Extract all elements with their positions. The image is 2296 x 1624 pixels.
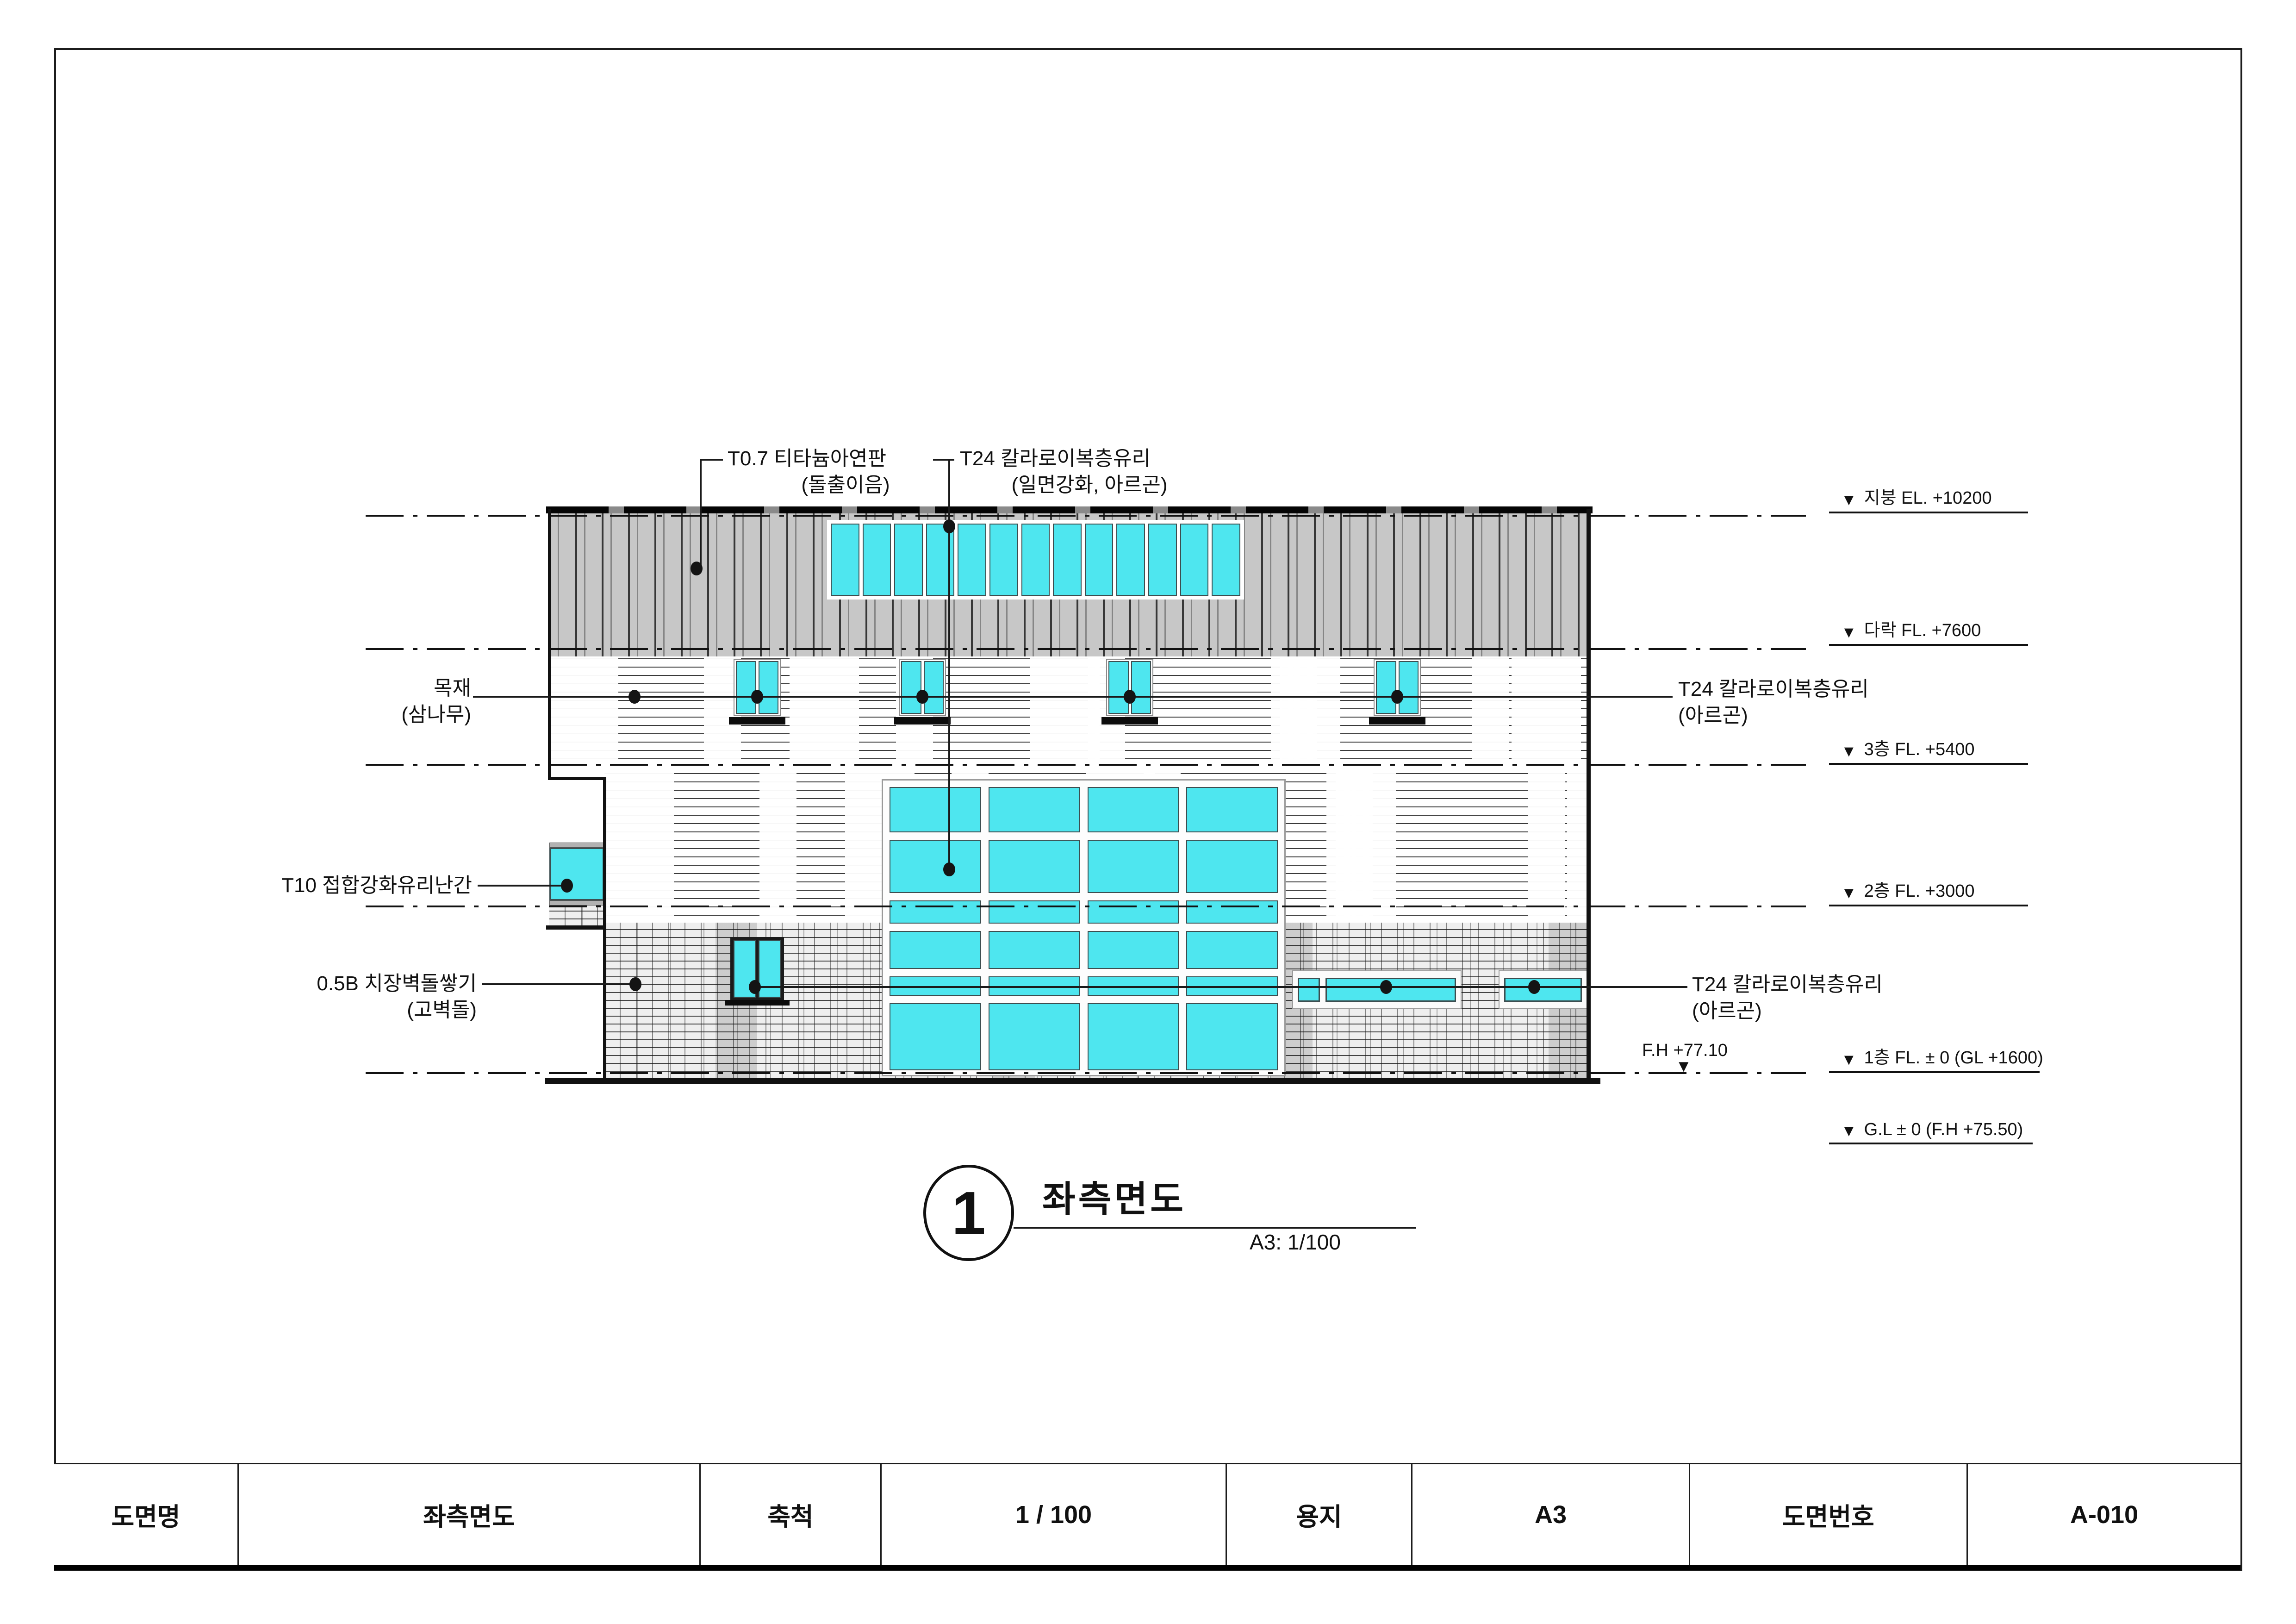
leader-railing [478,885,570,887]
glass-pane [890,1003,981,1070]
ground-line [545,1078,1600,1084]
level-line-3f [366,764,1806,766]
note-line: (아르곤) [1692,998,1883,1024]
titleblock-value-scale: 1 / 100 [882,1464,1227,1565]
glass-pane [1180,524,1209,596]
window-sill [894,717,951,725]
note-line: (일면강화, 아르곤) [960,472,1219,498]
glass-railing [549,848,604,900]
level-triangle-icon: ▼ [1841,743,1857,760]
clerestory-window-strip [827,520,1244,600]
level-marker-3f: ▼ 3층 FL. +5400 [1829,737,2028,765]
leader-brick [482,983,637,985]
glass-pane [1376,661,1396,714]
glass-pane [1399,661,1419,714]
attic-window [1106,659,1153,716]
glass-pane [1088,1003,1179,1070]
attic-window [734,659,781,716]
glass-pane [924,661,944,714]
glass-pane [1186,840,1278,893]
leader-dot [1391,690,1403,704]
curtain-wall-row [890,931,1278,969]
glass-pane [759,940,781,998]
strip-window-pane [1504,978,1582,1002]
glass-pane [1085,524,1114,596]
level-line-2f [366,906,1806,907]
balcony-base-line [546,925,606,930]
level-marker-2f: ▼ 2층 FL. +3000 [1829,879,2028,906]
leader-dot [628,690,641,704]
leader-roof-panel [700,459,702,570]
window-sill [1369,717,1425,725]
level-line-attic [366,648,1806,650]
note-line: (삼나무) [278,701,471,728]
glass-pane [958,524,986,596]
note-glass-top: T24 칼라로이복층유리 (일면강화, 아르곤) [960,445,1219,498]
glass-pane [1088,840,1179,893]
level-triangle-icon: ▼ [1841,624,1857,641]
titleblock-label-drawing-no: 도면번호 [1690,1464,1968,1565]
glass-pane [736,661,756,714]
central-curtain-wall [882,779,1286,1076]
level-label: 다락 FL. +7600 [1864,616,1981,641]
glass-pane [1131,661,1151,714]
glass-pane [926,524,955,596]
drawing-sheet: T0.7 티타늄아연판 (돌출이음) T24 칼라로이복층유리 (일면강화, 아… [0,0,2296,1624]
glass-pane [1186,787,1278,832]
level-label: 2층 FL. +3000 [1864,876,1975,902]
level-label: 3층 FL. +5400 [1864,735,1975,760]
level-marker-1f: ▼ 1층 FL. ± 0 (GL +1600) [1829,1045,2040,1073]
leader-glass-bottom [749,986,1687,988]
wood-siding-attic-band [549,656,1590,766]
leader-dot [943,519,955,533]
view-title: 좌측면도 [1042,1170,1186,1222]
glass-pane [989,900,1080,924]
glass-pane [759,661,779,714]
note-line: 목재 [278,675,471,701]
note-line: 0.5B 치장벽돌쌓기 [278,970,477,997]
railing-bottom-cap [549,900,604,906]
level-line-roof [366,515,1806,517]
titleblock-label-drawing-name: 도면명 [54,1464,239,1565]
level-line-1f [366,1072,1806,1074]
curtain-wall-row [890,900,1278,924]
note-wood: 목재 (삼나무) [278,675,471,728]
leader-dot [916,690,928,704]
level-label: 지붕 EL. +10200 [1864,483,1992,509]
curtain-wall-row [890,1003,1278,1070]
note-line: T24 칼라로이복층유리 [1678,676,1869,702]
curtain-wall-row [890,787,1278,832]
note-line: (돌출이음) [728,472,964,498]
strip-window-pane [1298,978,1320,1002]
title-block: 도면명 좌측면도 축척 1 / 100 용지 A3 도면번호 A-010 [54,1463,2240,1570]
railing-top-cap [549,843,604,848]
note-line: T24 칼라로이복층유리 [1692,971,1883,998]
note-line: T0.7 티타늄아연판 [728,445,964,472]
finish-height-triangle-icon: ▼ [1675,1056,1692,1076]
titleblock-value-drawing-name: 좌측면도 [239,1464,701,1565]
glass-pane [1108,661,1129,714]
glass-pane [1186,1003,1278,1070]
note-line: (고벽돌) [278,997,477,1023]
facade-step-line [548,777,606,780]
glass-pane [831,524,859,596]
level-triangle-icon: ▼ [1841,1122,1857,1140]
glass-pane [1021,524,1050,596]
leader-dot [1380,980,1392,994]
view-scale: A3: 1/100 [1250,1230,1341,1255]
glass-pane [863,524,891,596]
glass-pane [989,1003,1080,1070]
note-line: T24 칼라로이복층유리 [960,445,1219,472]
leader-tick [702,459,723,461]
glass-pane [890,900,981,924]
note-brick: 0.5B 치장벽돌쌓기 (고벽돌) [278,970,477,1023]
note-glass-mid: T24 칼라로이복층유리 (아르곤) [1678,676,1869,729]
facade-left-edge-upper [548,509,551,780]
glass-pane [1088,787,1179,832]
glass-pane [894,524,923,596]
leader-dot [629,977,641,991]
balcony-brick-parapet [549,906,604,926]
glass-pane [1088,931,1179,969]
glass-pane [890,931,981,969]
window-sill [1101,717,1158,725]
titleblock-label-paper: 용지 [1227,1464,1412,1565]
note-railing: T10 접합강화유리난간 [250,872,472,899]
titleblock-label-scale: 축척 [701,1464,882,1565]
window-sill [729,717,785,725]
leader-dot [749,980,761,994]
note-line: T10 접합강화유리난간 [250,872,472,899]
title-underline [1014,1227,1416,1229]
glass-pane [989,840,1080,893]
leader-dot [561,879,573,893]
leader-dot [1124,690,1136,704]
view-number: 1 [952,1178,985,1248]
level-marker-gl: ▼ G.L ± 0 (F.H +75.50) [1829,1117,2033,1144]
leader-wood-and-glass-mid [473,696,1673,698]
level-triangle-icon: ▼ [1841,491,1857,509]
leader-dot [691,562,703,575]
glass-pane [1186,931,1278,969]
glass-pane [989,931,1080,969]
glass-pane [1186,900,1278,924]
note-line: (아르곤) [1678,702,1869,729]
glass-pane [901,661,921,714]
level-triangle-icon: ▼ [1841,1051,1857,1068]
leader-dot [1528,980,1540,994]
glass-pane [890,840,981,893]
window-sill [725,1000,790,1006]
view-number-bubble: 1 [923,1165,1014,1261]
level-marker-attic: ▼ 다락 FL. +7600 [1829,618,2028,646]
note-glass-bottom: T24 칼라로이복층유리 (아르곤) [1692,971,1883,1024]
glass-pane [1212,524,1240,596]
level-marker-roof: ▼ 지붕 EL. +10200 [1829,486,2028,513]
glass-pane [1116,524,1145,596]
level-triangle-icon: ▼ [1841,884,1857,902]
attic-window [1374,659,1421,716]
note-roof-panel: T0.7 티타늄아연판 (돌출이음) [728,445,964,498]
glass-pane [989,524,1018,596]
titleblock-value-paper: A3 [1412,1464,1690,1565]
glass-pane [1053,524,1082,596]
glass-pane [989,787,1080,832]
level-label: G.L ± 0 (F.H +75.50) [1864,1120,2023,1140]
glass-pane [1088,900,1179,924]
glass-pane [1148,524,1177,596]
leader-dot [751,690,763,704]
parapet-cap [546,506,1593,513]
glass-pane [890,787,981,832]
level-label: 1층 FL. ± 0 (GL +1600) [1864,1043,2043,1068]
titleblock-value-drawing-no: A-010 [1968,1464,2240,1565]
leader-dot [943,862,955,876]
facade-right-edge [1587,509,1591,1080]
attic-window [899,659,946,716]
